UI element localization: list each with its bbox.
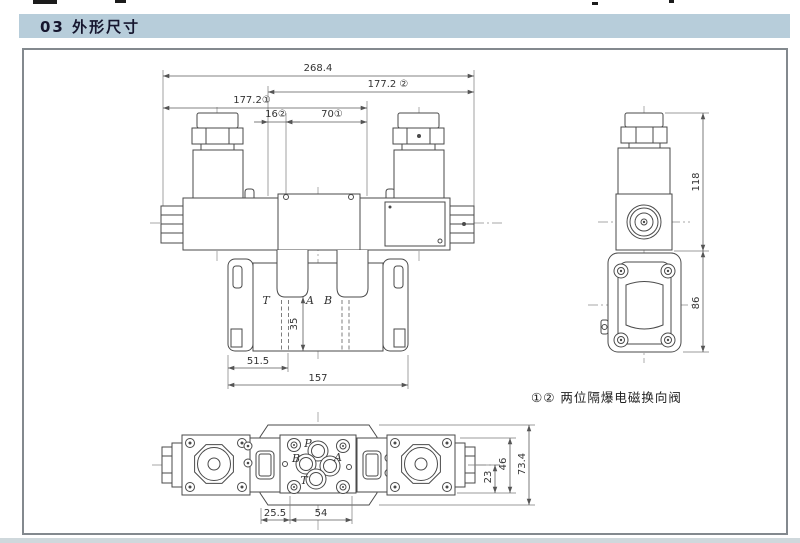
flange-screw — [391, 483, 400, 492]
top-valve-block: P A B T — [280, 435, 356, 494]
front-cable-gland-left — [161, 206, 183, 243]
front-subplate: 35 T A B — [228, 250, 408, 351]
nameplate — [385, 202, 445, 246]
flange-screw — [661, 264, 675, 278]
dim-width-solenoid-2: 177.2 ② — [368, 79, 409, 90]
dim-73-4: 73.4 — [517, 453, 528, 475]
dim-51-5: 51.5 — [247, 356, 269, 367]
nameplate-screw — [389, 206, 392, 209]
side-view: 118 86 ①② 两位隔爆电磁换向阀 — [531, 106, 709, 405]
front-solenoid-coil-right — [393, 113, 444, 198]
top-plug — [245, 189, 254, 198]
flange-screw — [614, 264, 628, 278]
block-screw — [288, 439, 301, 452]
front-view: 268.4 177.2 ② 177.2① 16② 70① — [150, 63, 503, 389]
dim-46: 46 — [498, 458, 509, 471]
dimension-drawing: 268.4 177.2 ② 177.2① 16② 70① — [0, 0, 800, 543]
top-flange-left — [182, 435, 250, 495]
dim-70: 70① — [321, 109, 343, 120]
mounting-bracket-right — [383, 259, 408, 351]
top-flange-right — [387, 435, 455, 495]
side-mounting-flange — [601, 253, 681, 352]
port-label-b: B — [291, 452, 300, 465]
dim-overall-width: 268.4 — [304, 63, 333, 74]
flange-screw — [391, 439, 400, 448]
port-label-a: A — [305, 294, 314, 307]
port-channel — [337, 250, 368, 297]
side-solenoid-coil — [618, 113, 670, 194]
flange-screw — [614, 333, 628, 347]
flange-screw — [186, 439, 195, 448]
dim-86: 86 — [691, 297, 702, 310]
dim-25-5: 25.5 — [264, 508, 286, 519]
port-label-a: A — [333, 451, 342, 464]
flange-screw — [186, 483, 195, 492]
front-valve-assembly — [161, 113, 474, 250]
port-t — [306, 469, 326, 489]
port-label-p: P — [303, 437, 312, 450]
top-view: P A B T — [152, 412, 535, 531]
dim-118: 118 — [691, 172, 702, 191]
flange-screw — [443, 483, 452, 492]
front-valve-body — [278, 194, 360, 250]
flange-screw — [443, 439, 452, 448]
front-solenoid-coil-left — [192, 113, 243, 198]
mounting-bracket-left — [228, 259, 253, 351]
flange-screw — [238, 483, 247, 492]
port-channel — [277, 250, 308, 297]
dim-23: 23 — [483, 471, 494, 484]
side-valve-body — [616, 194, 672, 250]
block-screw — [337, 481, 350, 494]
dim-16: 16② — [265, 109, 287, 120]
port-label-b: B — [323, 294, 332, 307]
front-solenoid-housing-left — [183, 198, 278, 250]
legend-note: ①② 两位隔爆电磁换向阀 — [531, 390, 682, 405]
front-cable-gland-right — [450, 206, 474, 243]
flange-screw — [661, 333, 675, 347]
dim-157: 157 — [308, 373, 327, 384]
top-cable-gland-left — [162, 443, 182, 487]
dim-35: 35 — [289, 318, 300, 331]
block-screw — [288, 481, 301, 494]
dim-54: 54 — [315, 508, 328, 519]
dim-width-solenoid-1: 177.2① — [233, 95, 271, 106]
